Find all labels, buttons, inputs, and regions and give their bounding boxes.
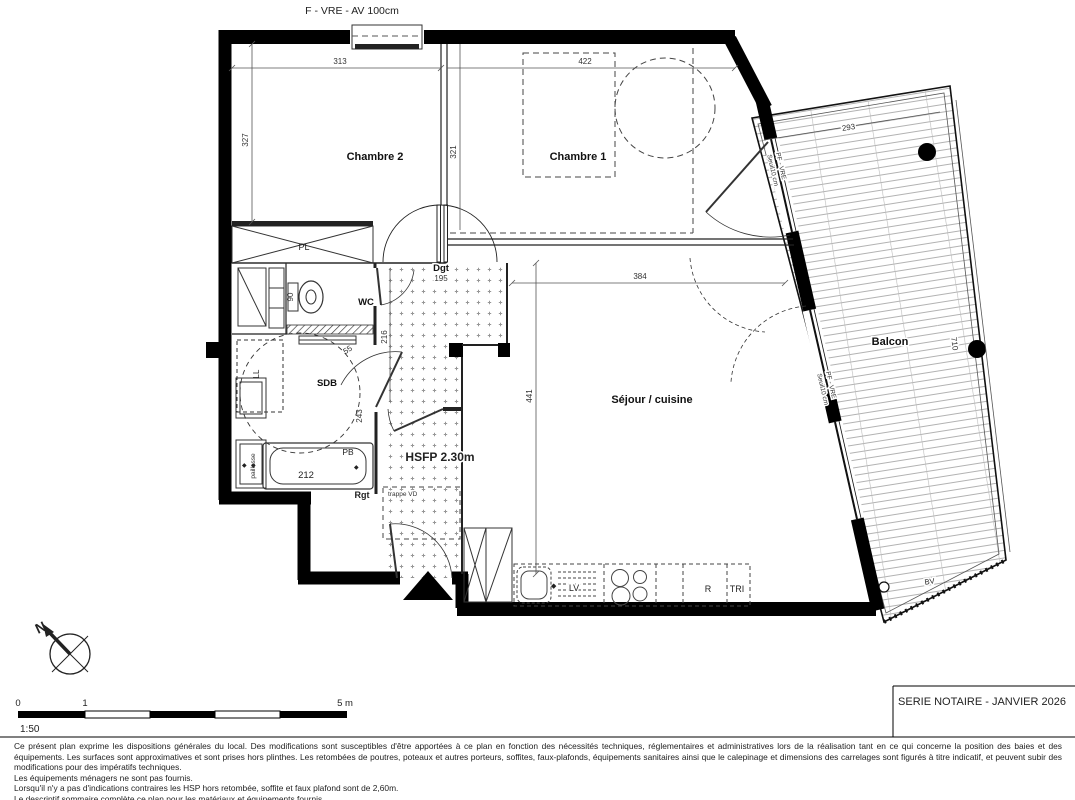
label-trappe-vd: trappe VD bbox=[388, 491, 418, 498]
dim-243: 243 bbox=[355, 409, 364, 423]
dim-55: 55 bbox=[342, 343, 355, 356]
compass bbox=[43, 624, 90, 674]
pilaster bbox=[206, 342, 220, 358]
chambre1-dashed bbox=[450, 48, 715, 233]
dim-441: 441 bbox=[525, 389, 534, 403]
dim-321: 321 bbox=[449, 145, 458, 159]
label-pb: PB bbox=[342, 447, 354, 457]
scale-tick-0: 0 bbox=[15, 698, 20, 709]
column bbox=[449, 343, 463, 357]
dim-422: 422 bbox=[578, 57, 592, 66]
series-label: SERIE NOTAIRE - JANVIER 2026 bbox=[898, 696, 1066, 708]
scale-ratio: 1:50 bbox=[20, 724, 40, 735]
label-pl: PL bbox=[298, 242, 309, 252]
dim-216: 216 bbox=[380, 330, 389, 344]
scale-tick-5m: 5 m bbox=[337, 698, 353, 709]
label-hsfp: HSFP 2.30m bbox=[405, 450, 474, 464]
scale-tick-1: 1 bbox=[82, 698, 87, 709]
technical-cabinet bbox=[464, 528, 512, 602]
dim-212: 212 bbox=[298, 470, 314, 481]
balcony bbox=[752, 86, 1006, 622]
window-label: F - VRE - AV 100cm bbox=[305, 5, 399, 17]
dim-313: 313 bbox=[333, 57, 347, 66]
room-label-sejour: Séjour / cuisine bbox=[611, 394, 692, 406]
room-label-chambre1: Chambre 1 bbox=[550, 151, 607, 163]
dim-384: 384 bbox=[633, 272, 647, 281]
room-label-chambre2: Chambre 2 bbox=[347, 151, 404, 163]
faucet-icon: ◆ bbox=[242, 463, 247, 469]
room-label-sdb: SDB bbox=[317, 378, 337, 389]
note-paragraph: Ce présent plan exprime les dispositions… bbox=[14, 741, 1062, 773]
hallway-floor bbox=[382, 263, 507, 578]
column bbox=[918, 143, 936, 161]
dim-195: 195 bbox=[434, 274, 448, 283]
scale-bar: 0 1 5 m 1:50 bbox=[15, 698, 353, 735]
label-lv: LV bbox=[569, 583, 579, 593]
label-tri: TRI bbox=[730, 584, 745, 594]
label-bv: BV bbox=[924, 576, 935, 586]
label-r: R bbox=[705, 584, 712, 594]
room-label-dgt: Dgt bbox=[433, 263, 450, 274]
footer-notes: Ce présent plan exprime les dispositions… bbox=[14, 741, 1062, 800]
towel-radiator bbox=[299, 336, 356, 344]
drain bbox=[879, 582, 889, 592]
label-ll: LL bbox=[252, 369, 261, 378]
room-label-wc: WC bbox=[358, 297, 374, 308]
drain-icon: ◆ bbox=[354, 465, 359, 471]
column bbox=[968, 340, 986, 358]
partitions bbox=[232, 44, 794, 574]
wc-fixtures bbox=[238, 268, 323, 328]
note-paragraph: Les équipements ménagers ne sont pas fou… bbox=[14, 773, 1062, 784]
faucet-icon: ◆ bbox=[551, 583, 557, 590]
dim-710: 710 bbox=[949, 337, 960, 352]
dim-90: 90 bbox=[286, 292, 295, 301]
window-f-vre bbox=[350, 25, 424, 49]
room-label-balcon: Balcon bbox=[872, 336, 909, 348]
label-paillasse: paillasse bbox=[250, 453, 257, 479]
floor-plan-svg: ◆ ◆ ◆ ◆ bbox=[0, 0, 1075, 740]
label-rgt: Rgt bbox=[355, 490, 370, 500]
column bbox=[498, 343, 510, 357]
kitchen-counter bbox=[514, 564, 750, 606]
dim-327: 327 bbox=[241, 133, 250, 147]
floor-plan-sheet: ◆ ◆ ◆ ◆ bbox=[0, 0, 1075, 800]
note-paragraph: Lorsqu'il n'y a pas d'indications contra… bbox=[14, 783, 1062, 794]
note-paragraph: Le descriptif sommaire complète ce plan … bbox=[14, 794, 1062, 800]
